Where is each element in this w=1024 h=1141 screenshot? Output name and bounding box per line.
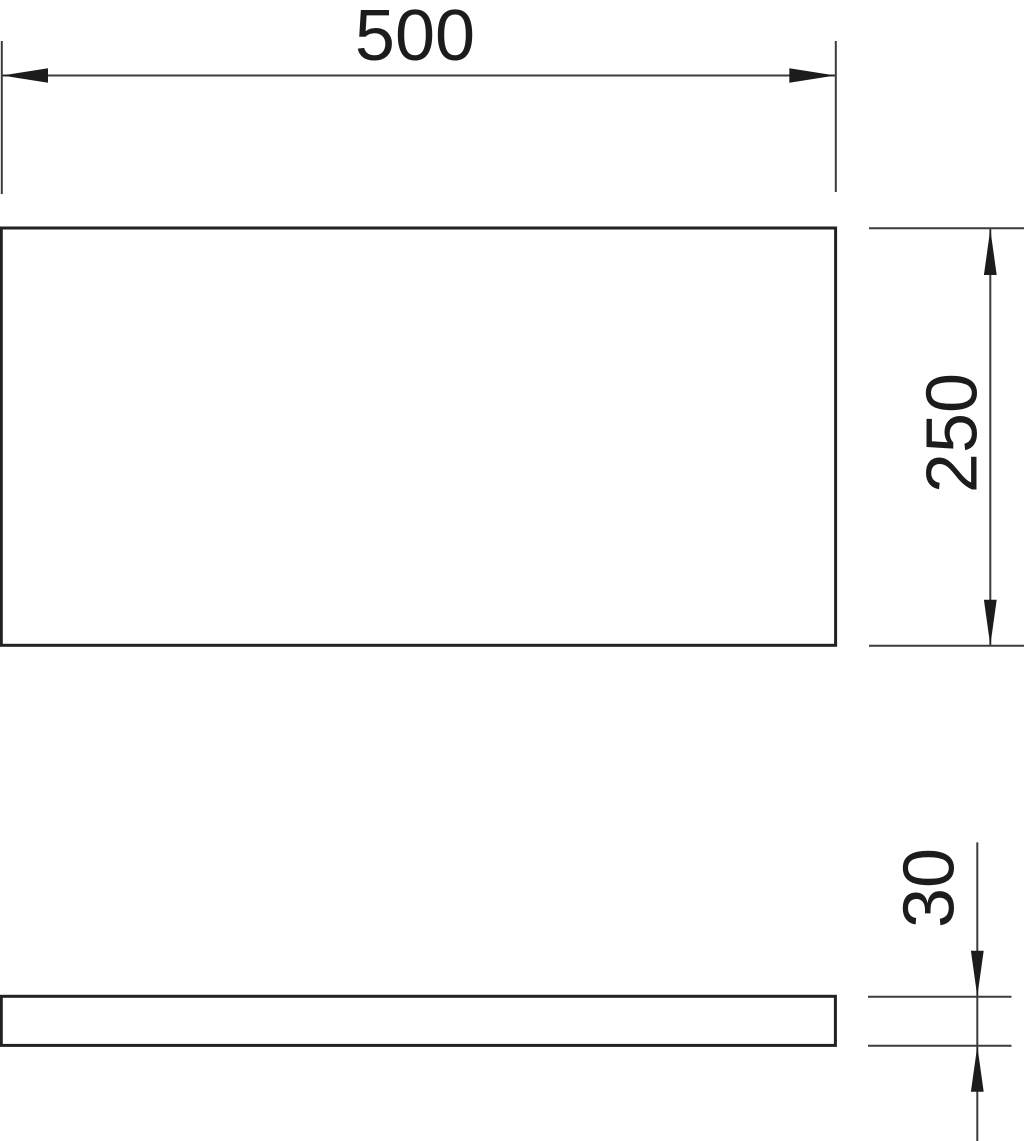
svg-text:250: 250 (913, 373, 993, 493)
svg-text:500: 500 (355, 0, 475, 76)
svg-text:30: 30 (890, 848, 970, 928)
